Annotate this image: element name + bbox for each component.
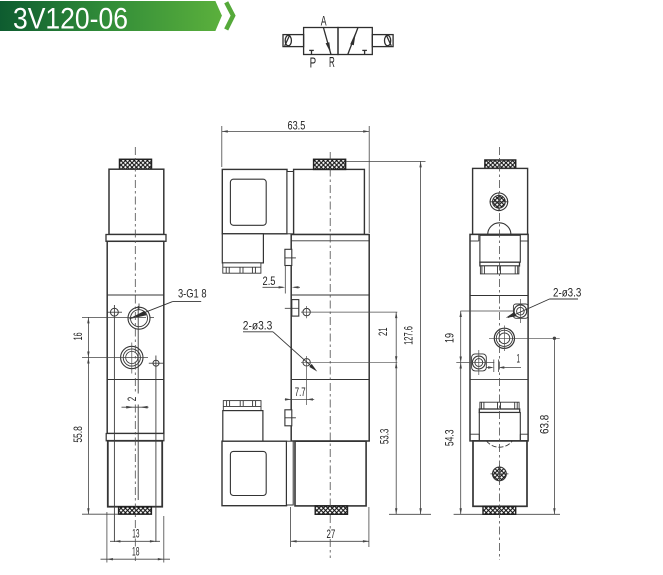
svg-text:53.3: 53.3: [377, 428, 391, 444]
svg-text:13: 13: [132, 527, 139, 541]
svg-text:P: P: [310, 55, 317, 71]
svg-text:27: 27: [327, 527, 336, 541]
svg-text:127.6: 127.6: [402, 326, 416, 345]
svg-text:54.3: 54.3: [442, 429, 456, 446]
svg-text:18: 18: [132, 545, 140, 559]
svg-text:3V120-06: 3V120-06: [13, 3, 128, 36]
svg-text:63.5: 63.5: [288, 119, 306, 133]
svg-text:3-G1 8: 3-G1 8: [178, 287, 207, 301]
svg-text:63.8: 63.8: [537, 415, 551, 434]
svg-text:2: 2: [125, 397, 139, 402]
svg-text:2.5: 2.5: [263, 274, 276, 288]
svg-text:21: 21: [376, 327, 390, 336]
svg-text:2-ø3.3: 2-ø3.3: [243, 318, 273, 332]
svg-text:2-ø3.3: 2-ø3.3: [553, 285, 582, 299]
svg-text:1: 1: [517, 351, 521, 365]
svg-text:7.7: 7.7: [295, 385, 306, 399]
svg-text:A: A: [321, 14, 327, 29]
svg-text:55.8: 55.8: [71, 426, 85, 443]
svg-text:R: R: [329, 55, 335, 71]
svg-text:19: 19: [442, 333, 456, 343]
svg-text:16: 16: [71, 332, 85, 340]
